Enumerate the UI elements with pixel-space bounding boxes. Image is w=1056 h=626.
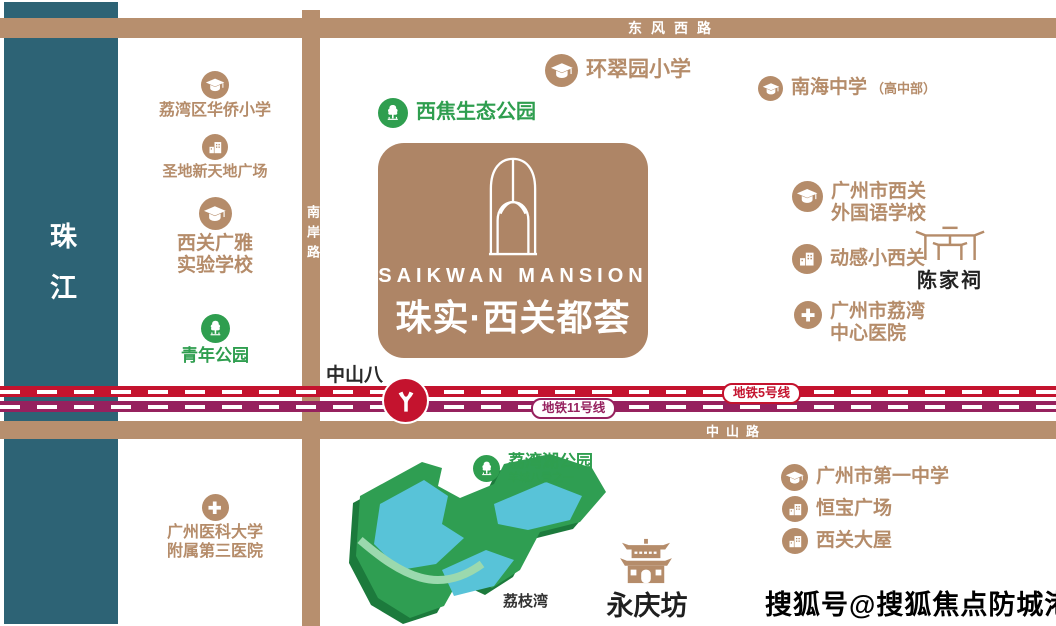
road-label-zhongshan: 中山路 bbox=[706, 421, 766, 439]
graduation-cap-icon bbox=[545, 54, 578, 87]
metro-logo-icon bbox=[382, 377, 429, 424]
poi-liwan-lake-park: 荔湾湖公园 羊城八景之一 bbox=[473, 452, 593, 485]
road-nanan bbox=[302, 10, 320, 626]
station-zhongshanba-label: 中山八 bbox=[326, 360, 383, 387]
road-zhongshan bbox=[0, 421, 1056, 439]
poi-guangzhou-no1-middle-school: 广州市第一中学 bbox=[781, 464, 949, 491]
paifang-gate-icon bbox=[914, 224, 986, 262]
building-icon bbox=[792, 244, 822, 274]
tree-icon bbox=[201, 314, 230, 343]
tree-icon bbox=[378, 98, 408, 128]
poi-xiguan-dawu: 西关大屋 bbox=[782, 528, 892, 554]
hospital-cross-icon bbox=[202, 494, 229, 521]
pavilion-gate-icon bbox=[617, 537, 675, 585]
property-name-cn: 珠实·西关都荟 bbox=[396, 289, 631, 341]
poi-huancuiyuan-primary-school: 环翠园小学 bbox=[545, 54, 691, 87]
property-name-en: SAIKWAN MANSION bbox=[378, 265, 647, 288]
river-label: 珠江 bbox=[42, 222, 81, 324]
poi-shengdi-xintiandi-plaza: 圣地新天地广场 bbox=[135, 134, 295, 181]
property-card: SAIKWAN MANSION 珠实·西关都荟 bbox=[378, 143, 648, 358]
metro-line-11-badge: 地铁11号线 bbox=[531, 398, 616, 419]
watermark: 搜狐号@搜狐焦点防城港站 bbox=[765, 583, 1056, 622]
poi-liwan-huaqiao-primary-school: 荔湾区华侨小学 bbox=[135, 71, 295, 121]
graduation-cap-icon bbox=[758, 76, 783, 101]
poi-guangyi-third-hospital: 广州医科大学 附属第三医院 bbox=[130, 494, 300, 562]
poi-liwan-central-hospital: 广州市荔湾 中心医院 bbox=[794, 301, 925, 346]
road-label-nanan: 南岸路 bbox=[303, 205, 322, 265]
road-label-dongfeng: 东风西路 bbox=[628, 18, 720, 38]
metro-line-5-badge: 地铁5号线 bbox=[722, 383, 801, 404]
graduation-cap-icon bbox=[781, 464, 808, 491]
poi-hengbao-plaza: 恒宝广场 bbox=[782, 496, 892, 522]
graduation-cap-icon bbox=[199, 197, 232, 230]
building-icon bbox=[782, 496, 808, 522]
lizhiwan-label: 荔枝湾 bbox=[503, 590, 548, 611]
poi-donggan-xiaoxiguan: 动感小西关 bbox=[792, 244, 925, 274]
location-map: 珠江 东风西路 南岸路 中山路 地铁5号线 地铁11号线 中山八 SAIKWAN… bbox=[0, 0, 1056, 626]
poi-xiguan-guangya-school: 西关广雅 实验学校 bbox=[135, 197, 295, 278]
yongqingfang-label: 永庆坊 bbox=[602, 584, 692, 623]
road-dongfeng-west bbox=[0, 18, 1056, 38]
building-icon bbox=[202, 134, 228, 160]
chenjiaci-label: 陈家祠 bbox=[914, 264, 986, 293]
poi-qingnian-park: 青年公园 bbox=[135, 314, 295, 366]
metro-line-5 bbox=[0, 386, 1056, 397]
arch-window-logo-icon bbox=[488, 156, 538, 256]
graduation-cap-icon bbox=[792, 181, 823, 212]
poi-nanhai-middle-school: 南海中学 （高中部） bbox=[758, 76, 936, 101]
poi-xijiao-eco-park: 西焦生态公园 bbox=[378, 98, 536, 128]
tree-icon bbox=[473, 455, 500, 482]
metro-line-11 bbox=[0, 401, 1056, 412]
graduation-cap-icon bbox=[201, 71, 229, 99]
building-icon bbox=[782, 528, 808, 554]
hospital-cross-icon bbox=[794, 301, 822, 329]
poi-xiguan-foreign-language-school: 广州市西关 外国语学校 bbox=[792, 181, 926, 226]
